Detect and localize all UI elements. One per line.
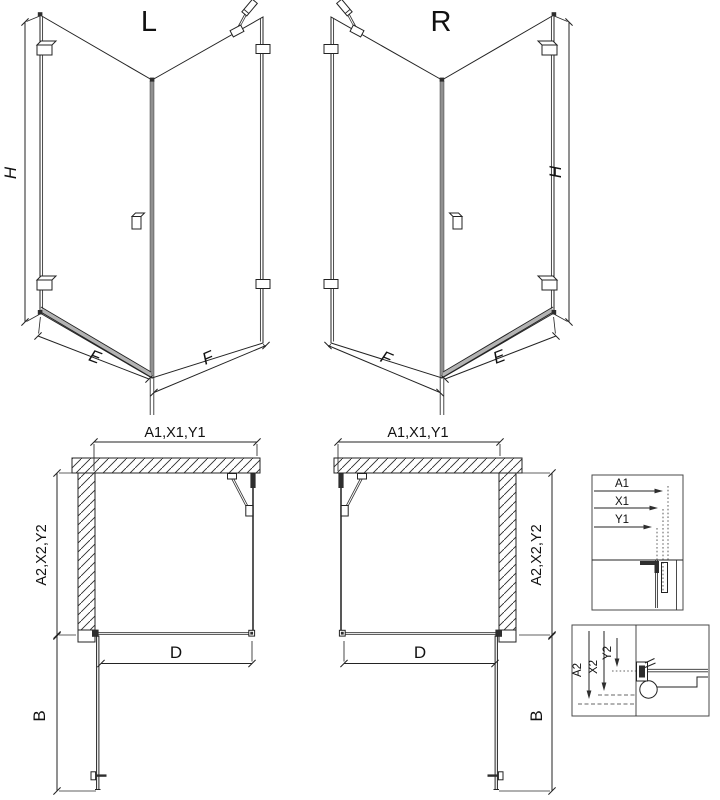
plan-view-left: A1,X1,Y1 A2,X2,Y2 D B <box>30 425 261 795</box>
detail-dim-x2: X2 <box>588 660 600 674</box>
plan-dim-door-right: B <box>527 710 546 721</box>
iso-structure-right <box>324 0 573 415</box>
plan-structure-left <box>91 474 256 791</box>
wall-top <box>72 458 260 473</box>
wall-top <box>334 458 522 473</box>
plan-structure-right <box>338 474 503 791</box>
detail-dim-x1: X1 <box>615 496 629 508</box>
version-title-left: L <box>141 6 157 38</box>
iso-structure-left <box>21 0 270 415</box>
version-title-right: R <box>431 6 452 38</box>
dim-label-door-width-right: E <box>490 346 508 368</box>
plan-dim-door-left: B <box>30 710 49 721</box>
detail-dim-a1: A1 <box>615 478 629 490</box>
wall-left <box>78 473 95 630</box>
plan-dim-entry-right: D <box>414 643 426 662</box>
detail-dim-y1: Y1 <box>615 514 629 526</box>
plan-view-right: A1,X1,Y1 A2,X2,Y2 D B <box>334 425 556 795</box>
wall-right <box>499 473 516 630</box>
detail-dim-a2: A2 <box>572 663 584 677</box>
dim-label-door-width-left: E <box>86 346 104 368</box>
dim-label-height-left: H <box>1 166 20 179</box>
detail-dim-y2: Y2 <box>602 646 614 660</box>
plan-dim-side-right: A2,X2,Y2 <box>529 524 545 585</box>
detail-box-bottom: A2 X2 Y2 <box>572 625 709 716</box>
dim-label-height-right: H <box>546 165 565 178</box>
detail-box-top: A1 X1 Y1 <box>592 475 683 610</box>
iso-view-left: L H E F <box>1 0 270 415</box>
plan-dim-top-left: A1,X1,Y1 <box>144 425 205 441</box>
shower-enclosure-diagram: L H E F R H F E A1,X1,Y1 A2,X2,Y2 <box>0 0 720 800</box>
plan-dim-top-right: A1,X1,Y1 <box>387 425 448 441</box>
plan-dim-side-left: A2,X2,Y2 <box>34 524 50 585</box>
iso-view-right: R H F E <box>324 0 573 415</box>
technical-diagram-page: L H E F R H F E A1,X1,Y1 A2,X2,Y2 <box>0 0 720 800</box>
plan-dim-entry-left: D <box>170 643 182 662</box>
